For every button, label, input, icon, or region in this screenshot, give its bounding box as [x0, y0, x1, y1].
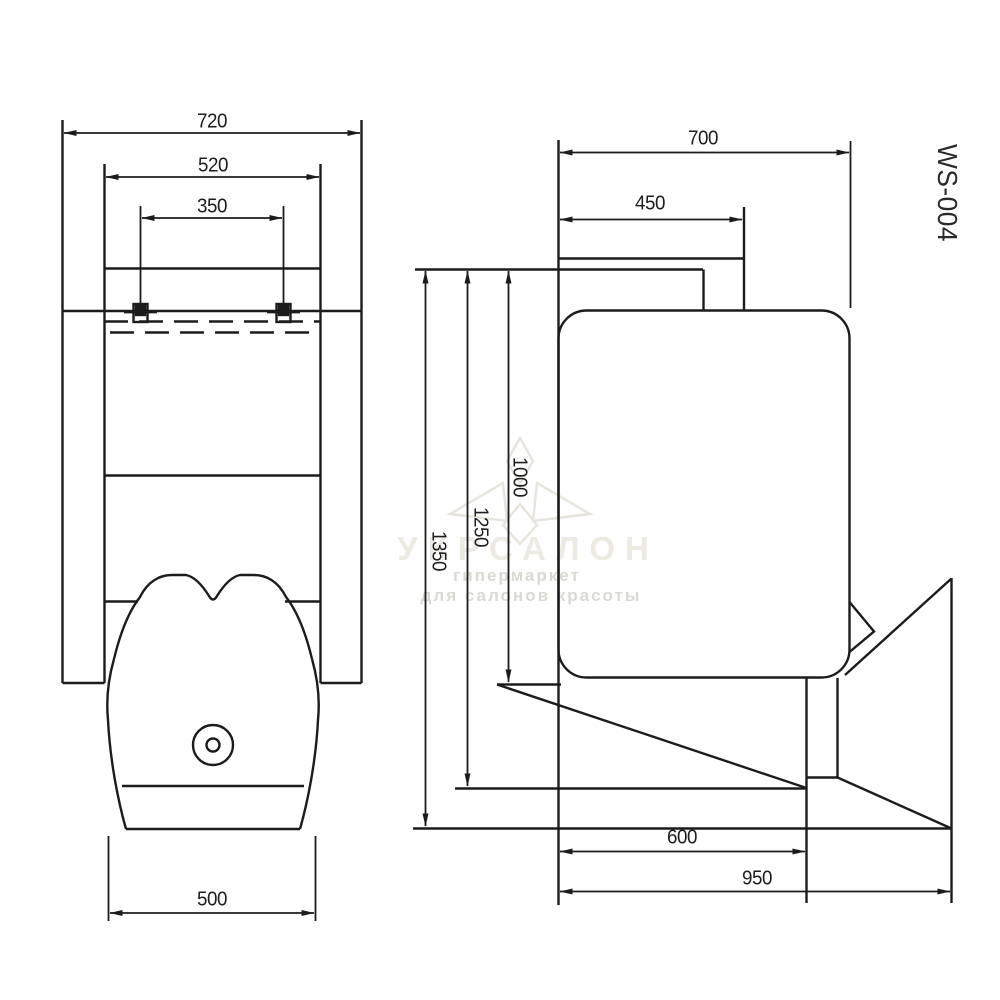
dim-label-450: 450 [635, 193, 665, 216]
dim-label-950: 950 [742, 868, 772, 891]
dim-label-700: 700 [688, 128, 718, 151]
mount-bolt-right [267, 304, 300, 322]
drawing-canvas [0, 0, 1000, 1000]
pedestal-column [497, 678, 838, 903]
technical-drawing: УКРСАЛОН гипермаркет для салонов красоты [0, 0, 1000, 1000]
dim-label-720: 720 [197, 111, 227, 134]
basin-outline [107, 575, 319, 829]
dim-label-520: 520 [198, 155, 228, 178]
dim-label-600: 600 [667, 827, 697, 850]
dim-label-1250: 1250 [469, 507, 492, 547]
dim-label-1350: 1350 [427, 531, 450, 571]
front-view [62, 120, 362, 829]
dim-350 [141, 206, 284, 303]
dim-label-500: 500 [197, 889, 227, 912]
side-view [413, 140, 952, 905]
dim-700 [560, 141, 851, 308]
dim-label-1000: 1000 [508, 457, 531, 497]
mount-bolt-left [124, 304, 157, 322]
dim-label-350: 350 [197, 196, 227, 219]
model-code-label: WS-004 [931, 144, 963, 242]
side-lever-detail [850, 602, 875, 652]
drain-icon [193, 725, 233, 765]
